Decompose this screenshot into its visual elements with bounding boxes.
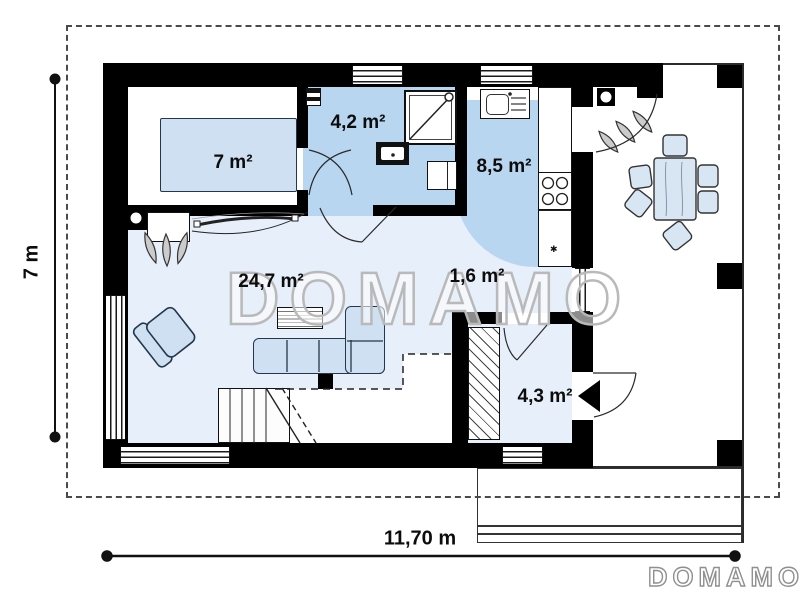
label-living-area: 24,7 m² [238, 271, 303, 293]
dimension-left [51, 75, 60, 442]
label-hall-area: 1,6 m² [450, 266, 505, 288]
label-total-height: 7 m [21, 245, 44, 279]
porch-step-line-1 [478, 525, 741, 527]
label-bedroom-area: 7 m² [213, 152, 252, 174]
porch-step-line-2 [478, 533, 741, 535]
label-wardrobe-area: 4,3 m² [518, 386, 573, 408]
floor-plan: ✱ DOMAMO [0, 0, 800, 594]
dimension-bottom [103, 552, 740, 561]
label-total-width: 11,70 m [384, 528, 456, 551]
brand-logo: DOMAMO [648, 562, 800, 592]
label-bathroom-area: 4,2 m² [331, 112, 386, 134]
label-kitchen-area: 8,5 m² [477, 156, 532, 178]
plot-boundary [66, 25, 780, 498]
